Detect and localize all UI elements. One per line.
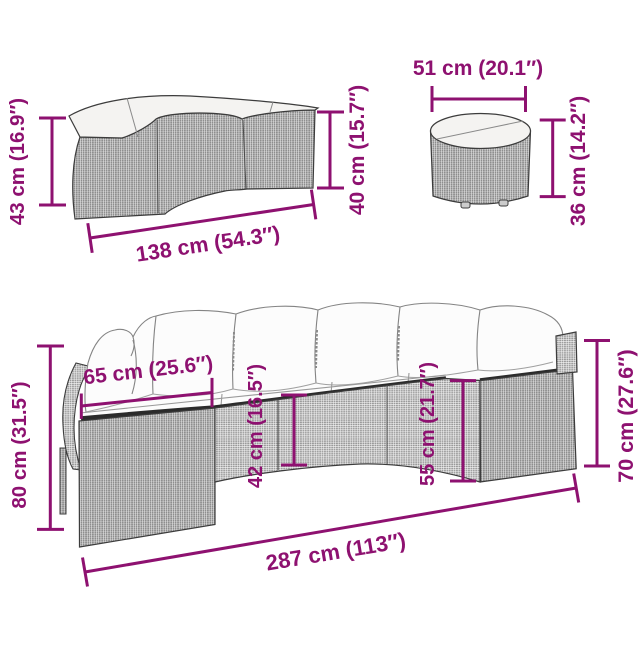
svg-text:70 cm (27.6″): 70 cm (27.6″)	[614, 349, 638, 482]
svg-text:42 cm (16.5″): 42 cm (16.5″)	[245, 364, 267, 488]
svg-text:43 cm (16.9″): 43 cm (16.9″)	[6, 98, 29, 225]
svg-text:40 cm (15.7″): 40 cm (15.7″)	[346, 85, 369, 215]
svg-text:55 cm (21.7″): 55 cm (21.7″)	[417, 362, 439, 486]
svg-text:36 cm (14.2″): 36 cm (14.2″)	[567, 96, 590, 226]
svg-text:51 cm (20.1″): 51 cm (20.1″)	[413, 57, 543, 80]
svg-text:80 cm (31.5″): 80 cm (31.5″)	[8, 381, 31, 508]
